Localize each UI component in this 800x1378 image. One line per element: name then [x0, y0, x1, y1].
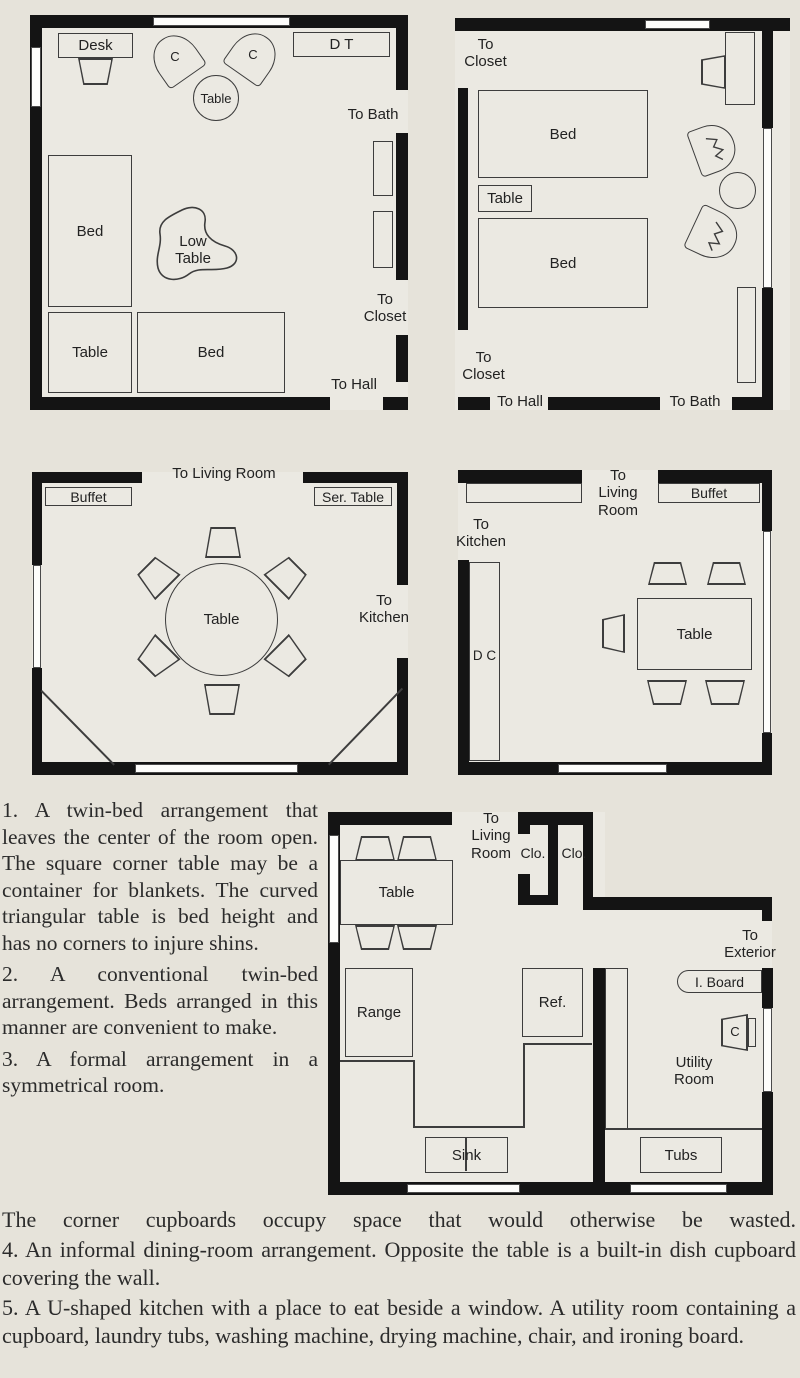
bed: Bed	[478, 218, 648, 308]
sink-label: Sink	[452, 1147, 481, 1164]
dining-table: Table	[165, 563, 278, 676]
dressing-table-label: D T	[330, 36, 354, 53]
wall-segment	[762, 1092, 773, 1195]
counter-edge	[605, 1128, 762, 1130]
wall-segment	[593, 968, 605, 1195]
door-label-to-closet: To Closet	[456, 349, 511, 384]
window	[763, 128, 772, 288]
corner-table-label: Table	[72, 344, 108, 361]
buffet: Buffet	[658, 483, 760, 503]
kitchen-table: Table	[340, 860, 453, 925]
wall-segment	[397, 472, 408, 585]
desk-label: Desk	[78, 37, 112, 54]
wall-segment	[762, 470, 772, 531]
laundry-tubs-label: Tubs	[665, 1147, 698, 1164]
kitchen-table-label: Table	[379, 884, 415, 901]
wall-segment	[32, 472, 42, 565]
laundry-tubs: Tubs	[640, 1137, 722, 1173]
wall-segment	[328, 812, 452, 825]
wall-segment	[762, 288, 773, 410]
door-label-to-closet: To Closet	[458, 36, 513, 71]
door-label-to-closet: To Closet	[360, 291, 410, 326]
sink: Sink	[425, 1137, 508, 1173]
dish-cupboard-label: D C	[466, 648, 503, 664]
wall-segment	[383, 397, 408, 410]
wall-segment	[396, 133, 408, 280]
wall-segment	[762, 968, 773, 1008]
book-page: Desk C C Table D T Bed Low Table Table B…	[0, 0, 800, 1378]
dining-chair	[705, 680, 745, 705]
wall-segment	[458, 88, 468, 330]
caption-paragraph-3: 3. A formal arrangement in a symmetrical…	[2, 1046, 318, 1099]
wall-segment	[458, 560, 469, 775]
door-label-to-hall: To Hall	[328, 376, 380, 393]
wall-segment	[30, 397, 330, 410]
kitchen-chair	[397, 925, 437, 950]
bed-label: Bed	[198, 344, 225, 361]
wall-segment	[762, 897, 772, 921]
window	[31, 47, 41, 107]
closet-label: Clo.	[518, 845, 548, 861]
window	[407, 1184, 520, 1193]
bed: Bed	[137, 312, 285, 393]
dining-table-label: Table	[204, 611, 240, 628]
kitchen-chair	[355, 925, 395, 950]
door-label-to-living-room: To Living Room	[466, 810, 516, 862]
window	[558, 764, 667, 773]
dining-chair	[602, 614, 625, 653]
wall-segment	[762, 18, 773, 128]
dining-chair	[204, 684, 240, 715]
chest	[737, 287, 756, 383]
bed-label: Bed	[77, 223, 104, 240]
window	[33, 565, 41, 668]
wall-segment	[548, 397, 660, 410]
door-label-to-kitchen: To Kitchen	[452, 516, 510, 551]
round-table-label: Table	[200, 91, 231, 106]
window	[763, 1008, 772, 1092]
wall-segment	[583, 897, 772, 910]
counter-edge	[413, 1060, 415, 1128]
bedside-table: Table	[478, 185, 532, 212]
window	[630, 1184, 727, 1193]
utility-chair-back	[748, 1018, 756, 1047]
ironing-board: I. Board	[677, 970, 762, 993]
dining-table-label: Table	[677, 626, 713, 643]
cupboard	[605, 968, 628, 1130]
buffet-label: Buffet	[70, 489, 106, 505]
dining-chair	[205, 527, 241, 558]
dining-chair	[707, 562, 746, 585]
window	[329, 835, 339, 943]
desk: Desk	[58, 33, 133, 58]
round-table: Table	[193, 75, 239, 121]
kitchen-chair	[355, 836, 395, 861]
wall-segment	[396, 335, 408, 382]
ironing-board-label: I. Board	[695, 974, 744, 990]
chair-label: C	[238, 48, 268, 63]
door-label-to-hall: To Hall	[494, 393, 546, 410]
bed-label: Bed	[550, 126, 577, 143]
caption-column: 1. A twin-bed arrangement that leaves th…	[2, 797, 318, 1099]
door-label-to-kitchen: To Kitchen	[358, 592, 410, 627]
counter-edge	[340, 1060, 415, 1062]
bed: Bed	[478, 90, 648, 178]
wall-segment	[732, 397, 773, 410]
counter-edge	[523, 1043, 592, 1045]
serving-table: Ser. Table	[314, 487, 392, 506]
table-label: Table	[487, 190, 523, 207]
door-label-to-exterior: To Exterior	[720, 927, 780, 962]
caption-paragraph-4: 4. An informal dining-room arrangement. …	[2, 1236, 796, 1291]
dining-table: Table	[637, 598, 752, 670]
wall-segment	[32, 668, 42, 775]
buffet-label: Buffet	[691, 485, 727, 501]
desk-chair	[78, 58, 113, 85]
range: Range	[345, 968, 413, 1057]
wall-segment	[458, 470, 582, 483]
bed-label: Bed	[550, 255, 577, 272]
wall-segment	[396, 15, 408, 90]
caption-paragraph-5: 5. A U-shaped kitchen with a place to ea…	[2, 1294, 796, 1349]
door-label-to-living-room: To Living Room	[145, 465, 303, 482]
counter-edge	[413, 1126, 525, 1128]
door-label-to-living-room: To Living Room	[593, 467, 643, 519]
corner-table: Table	[48, 312, 132, 393]
window	[153, 17, 290, 26]
wall-segment	[303, 472, 408, 483]
chair-label: C	[160, 50, 190, 65]
refrigerator-label: Ref.	[539, 994, 567, 1011]
bed: Bed	[48, 155, 132, 307]
closet-label: Clo.	[557, 845, 591, 861]
dressing-table: D T	[293, 32, 390, 57]
chest	[373, 141, 393, 196]
utility-room-label: Utility Room	[664, 1054, 724, 1089]
door-label-to-bath: To Bath	[664, 393, 726, 410]
refrigerator: Ref.	[522, 968, 583, 1037]
dressing-table-chair	[701, 55, 726, 89]
caption-paragraph-1: 1. A twin-bed arrangement that leaves th…	[2, 797, 318, 956]
caption-paragraph-2: 2. A conventional twin-bed arrangement. …	[2, 961, 318, 1041]
buffet: Buffet	[45, 487, 132, 506]
wall-segment	[458, 397, 490, 410]
counter-edge	[523, 1043, 525, 1128]
serving-table-label: Ser. Table	[322, 489, 384, 505]
chest	[373, 211, 393, 268]
utility-chair-label: C	[723, 1025, 747, 1040]
round-table	[719, 172, 756, 209]
window	[763, 531, 771, 733]
dining-chair	[648, 562, 687, 585]
wall-segment	[397, 658, 408, 775]
wall-segment	[518, 895, 558, 905]
range-label: Range	[357, 1004, 401, 1021]
wall-shelf	[466, 483, 582, 503]
dining-chair	[647, 680, 687, 705]
kitchen-chair	[397, 836, 437, 861]
door-label-to-bath: To Bath	[338, 106, 408, 123]
wall-segment	[658, 470, 772, 483]
low-table-label: Low Table	[162, 233, 224, 268]
window	[645, 20, 710, 29]
wall-segment	[455, 18, 790, 31]
window	[135, 764, 298, 773]
wall-segment	[32, 472, 142, 483]
dressing-table	[725, 32, 755, 105]
caption-paragraph-3-continued: The corner cupboards occupy space that w…	[2, 1206, 796, 1234]
